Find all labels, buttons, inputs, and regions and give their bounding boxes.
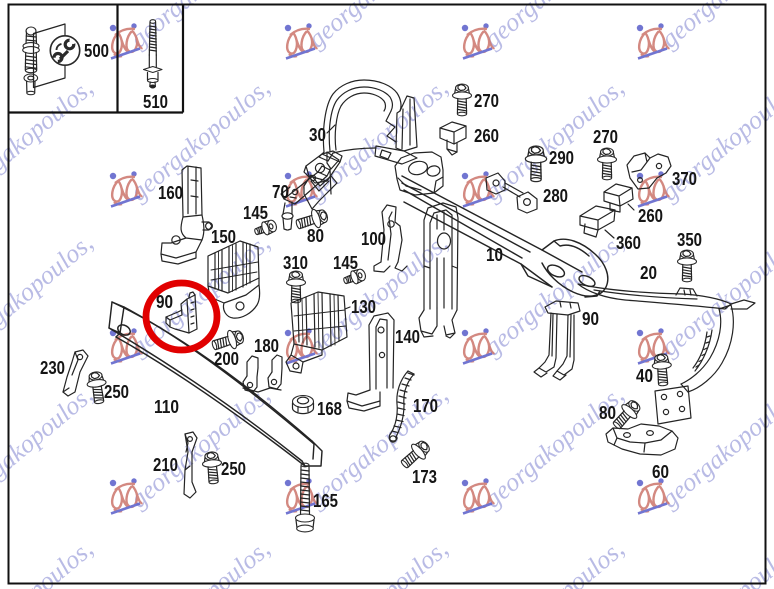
svg-text:165: 165 (313, 491, 338, 511)
svg-text:510: 510 (143, 92, 168, 112)
svg-text:10: 10 (486, 245, 503, 265)
svg-text:160: 160 (158, 183, 183, 203)
svg-text:130: 130 (351, 297, 376, 317)
svg-text:20: 20 (640, 263, 657, 283)
svg-text:360: 360 (616, 233, 641, 253)
svg-text:250: 250 (221, 459, 246, 479)
svg-text:180: 180 (254, 336, 279, 356)
svg-text:270: 270 (474, 91, 499, 111)
svg-text:260: 260 (474, 126, 499, 146)
svg-text:140: 140 (395, 327, 420, 347)
svg-text:80: 80 (307, 226, 324, 246)
svg-text:170: 170 (413, 396, 438, 416)
svg-text:200: 200 (214, 349, 239, 369)
svg-text:260: 260 (638, 206, 663, 226)
svg-text:80: 80 (599, 403, 616, 423)
svg-text:40: 40 (636, 366, 653, 386)
svg-text:173: 173 (412, 467, 437, 487)
svg-text:250: 250 (104, 382, 129, 402)
svg-text:100: 100 (361, 229, 386, 249)
svg-text:145: 145 (243, 203, 268, 223)
svg-text:60: 60 (652, 462, 669, 482)
svg-text:500: 500 (84, 41, 109, 61)
svg-text:145: 145 (333, 253, 358, 273)
svg-text:310: 310 (283, 253, 308, 273)
svg-text:270: 270 (593, 127, 618, 147)
svg-text:30: 30 (309, 125, 326, 145)
svg-text:370: 370 (672, 169, 697, 189)
svg-text:230: 230 (40, 358, 65, 378)
svg-text:70: 70 (272, 182, 289, 202)
svg-text:210: 210 (153, 455, 178, 475)
svg-text:168: 168 (317, 399, 342, 419)
svg-text:110: 110 (154, 397, 179, 417)
svg-text:90: 90 (582, 309, 599, 329)
svg-text:350: 350 (677, 230, 702, 250)
svg-text:280: 280 (543, 186, 568, 206)
svg-text:290: 290 (549, 148, 574, 168)
svg-text:150: 150 (211, 227, 236, 247)
